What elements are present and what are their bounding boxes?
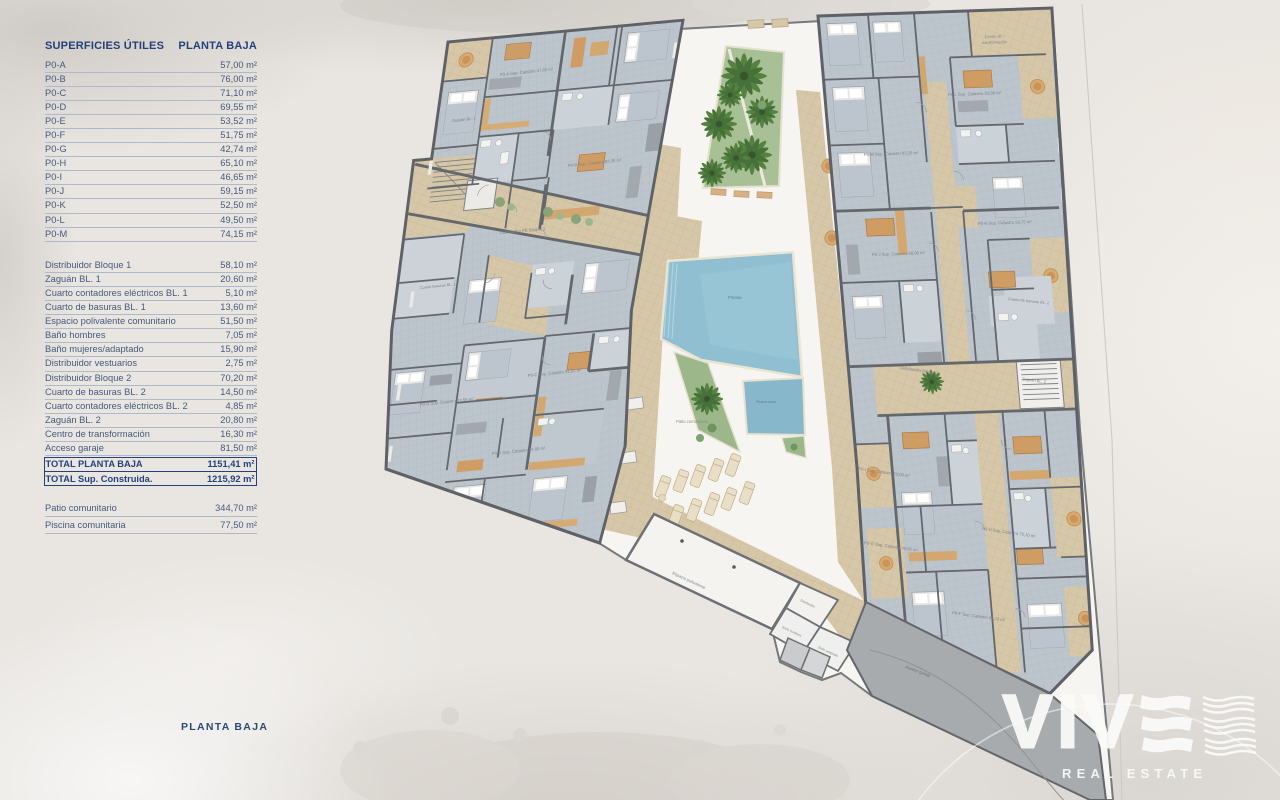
svg-text:REAL ESTATE: REAL ESTATE (1062, 766, 1207, 781)
svg-text:VIV: VIV (1003, 680, 1137, 763)
svg-text:Centro de: Centro de (985, 34, 1002, 39)
svg-text:Piscina ninos: Piscina ninos (756, 400, 776, 404)
svg-text:Patio comunitario: Patio comunitario (676, 419, 709, 424)
svg-text:Piscina: Piscina (728, 295, 742, 300)
